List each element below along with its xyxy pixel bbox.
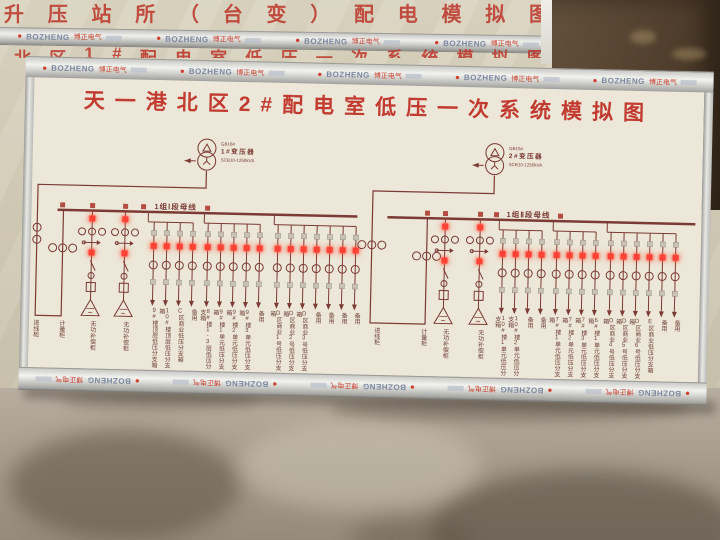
feeder-label: 9#楼3单元低压分支箱 xyxy=(240,310,250,372)
mimic-board: ●BOZHENG博正电气●BOZHENG博正电气●BOZHENG博正电气●BOZ… xyxy=(18,56,713,404)
feeder-label: 无功补偿柜 xyxy=(473,329,483,359)
brand-logo-icon: ● xyxy=(317,70,322,78)
feeder-label: E区商业低压分支箱 xyxy=(643,319,653,373)
feeder-label: D区商业1号低压分支箱 xyxy=(271,311,281,373)
feeder-label: 计量柜 xyxy=(417,328,426,346)
film-barcode xyxy=(543,77,559,82)
brand-chinese: 博正电气 xyxy=(193,377,221,388)
wall-title-char: # xyxy=(112,44,121,58)
brand-latin: BOZHENG xyxy=(362,382,406,392)
feeder-label: 备用 xyxy=(536,317,545,329)
feeder-label: 备用 xyxy=(324,312,333,324)
wall-title-char: 变 xyxy=(267,0,287,27)
brand-segment: ●BOZHENG博正电气 xyxy=(310,380,415,392)
brand-logo-icon: ● xyxy=(410,383,415,391)
feeder-label: 备用 xyxy=(350,312,359,324)
brand-latin: BOZHENG xyxy=(637,388,681,398)
feeder-label: 9#楼顶层低压分支箱 xyxy=(147,308,157,368)
wall-title-char: 模 xyxy=(442,0,462,27)
floor-stain xyxy=(430,470,720,540)
feeder-label: 7#楼1单元低压分支箱 xyxy=(550,317,560,379)
wall-title-char: 1 xyxy=(84,44,93,58)
feeder-label: 10#楼1单元低压分支箱 xyxy=(496,316,506,378)
door-mark xyxy=(630,30,656,44)
brand-segment: ●BOZHENG博正电气 xyxy=(448,383,553,395)
brand-latin: BOZHENG xyxy=(464,73,508,83)
floor-light-patch xyxy=(240,420,480,510)
brand-segment: ●BOZHENG博正电气 xyxy=(592,75,697,87)
feeder-label: C区商业低压分支箱 xyxy=(173,308,183,362)
wall-title-char: 站 xyxy=(92,0,112,27)
film-barcode xyxy=(448,386,464,391)
wall-title-char: ） xyxy=(310,0,330,27)
brand-latin: BOZHENG xyxy=(189,67,233,77)
feeder-label: D区商业2号低压分支箱 xyxy=(284,311,294,373)
wall-title-char: 所 xyxy=(135,0,155,27)
wall-title-char: 拟 xyxy=(485,0,505,27)
brand-latin: BOZHENG xyxy=(87,375,131,385)
brand-chinese: 博正电气 xyxy=(374,70,402,81)
brand-chinese: 博正电气 xyxy=(649,77,677,88)
feeder-label: 备用 xyxy=(254,310,263,322)
wall-title-char: 升 xyxy=(4,0,24,27)
feeder-label: 备用 xyxy=(311,312,320,324)
wall-title-char: 系 xyxy=(386,44,403,58)
brand-segment: ●BOZHENG博正电气 xyxy=(173,377,278,389)
brand-logo-icon: ● xyxy=(135,377,140,385)
film-barcode xyxy=(310,383,326,388)
feeder-label: 6#楼1单元低压分支箱 xyxy=(589,318,599,380)
feeder-label: D区商业3号低压分支箱 xyxy=(297,311,307,373)
brand-chinese: 博正电气 xyxy=(236,67,264,78)
brand-logo-icon: ● xyxy=(42,64,47,72)
brand-segment: ●BOZHENG博正电气 xyxy=(180,66,285,78)
feeder-label: 无功补偿柜 xyxy=(438,328,448,358)
wall-title-char: 低 xyxy=(245,44,262,58)
door-mark xyxy=(672,48,706,60)
brand-latin: BOZHENG xyxy=(326,70,370,80)
feeder-label: 备用 xyxy=(657,319,666,331)
brand-chinese: 博正电气 xyxy=(605,387,633,398)
wall-title-char: 次 xyxy=(351,44,368,58)
feeder-label: 7#楼3单元低压分支箱 xyxy=(576,318,586,380)
feeder-label: D区商业5号低压分支箱 xyxy=(617,319,627,381)
brand-logo-icon: ● xyxy=(593,76,598,84)
wall-title-char: 压 xyxy=(281,44,298,58)
feeder-label: D区商业4号低压分支箱 xyxy=(604,318,614,380)
feeder-label: 8#楼1-3层低压分支箱 xyxy=(201,309,211,371)
brand-chinese: 博正电气 xyxy=(74,32,102,42)
brand-chinese: 博正电气 xyxy=(511,74,539,85)
wall-title-char: 电 xyxy=(175,44,192,58)
wall-title-char: 压 xyxy=(48,0,68,27)
feeder-label: 进线柜 xyxy=(370,327,379,345)
feeder-label: 10#楼2单元低压分支箱 xyxy=(509,316,519,378)
feeder-label: D区商业6号低压分支箱 xyxy=(630,319,640,381)
floor-stain xyxy=(10,430,240,540)
wall-title-char: 模 xyxy=(457,44,474,58)
film-barcode xyxy=(173,379,189,384)
brand-chinese: 博正电气 xyxy=(99,64,127,75)
feeder-label: 9#楼1单元低压分支箱 xyxy=(214,309,224,371)
wall-title-char: 配 xyxy=(354,0,374,27)
brand-segment: ●BOZHENG博正电气 xyxy=(42,63,147,75)
brand-segment: ●BOZHENG博正电气 xyxy=(35,374,140,386)
film-barcode xyxy=(586,389,602,394)
brand-logo-icon: ● xyxy=(455,73,460,81)
film-barcode xyxy=(681,80,697,85)
wall-title-char: 一 xyxy=(316,44,333,58)
background-board-title: 升压站所（台变）配电模拟图 xyxy=(4,0,549,27)
brand-segment: ●BOZHENG博正电气 xyxy=(585,386,690,398)
wall-title-char: 配 xyxy=(140,44,157,58)
brand-logo-icon: ● xyxy=(180,67,185,75)
film-barcode xyxy=(131,67,147,72)
film-barcode xyxy=(245,37,261,42)
brand-chinese: 博正电气 xyxy=(55,374,83,385)
feeder-label: 备用 xyxy=(523,316,532,328)
wall-title-char: 室 xyxy=(210,44,227,58)
brand-logo-icon: ● xyxy=(685,390,690,398)
wall-title-char: 电 xyxy=(398,0,418,27)
feeder-label: 进线柜 xyxy=(29,319,38,337)
brand-latin: BOZHENG xyxy=(165,34,209,44)
feeder-label: 7#楼2单元低压分支箱 xyxy=(563,317,573,379)
brand-chinese: 博正电气 xyxy=(468,384,496,395)
wall-title-char: 统 xyxy=(421,44,438,58)
brand-segment: ●BOZHENG博正电气 xyxy=(17,31,121,43)
film-barcode xyxy=(268,71,284,76)
brand-latin: BOZHENG xyxy=(225,379,269,389)
wall-title-char: （ xyxy=(179,0,199,27)
feeder-label: 备用 xyxy=(187,309,196,321)
brand-logo-icon: ● xyxy=(156,34,161,42)
feeder-label: 无功补偿柜 xyxy=(118,321,128,351)
film-barcode xyxy=(35,376,51,381)
brand-latin: BOZHENG xyxy=(51,64,95,74)
feeder-label-layer: 进线柜计量柜无功补偿柜无功补偿柜9#楼顶层低压分支箱10#楼顶层低压分支箱C区商… xyxy=(28,77,704,382)
photo-scene: 升压站所（台变）配电模拟图 ●BOZHENG博正电气●BOZHENG博正电气●B… xyxy=(0,0,720,540)
background-board-title-2: 北区1#配电室低压一次系统模拟图 xyxy=(14,44,544,58)
feeder-label: 10#楼顶层低压分支箱 xyxy=(160,308,170,370)
feeder-label: 无功补偿柜 xyxy=(85,320,95,350)
feeder-label: 9#楼2单元低压分支箱 xyxy=(227,310,237,372)
brand-segment: ●BOZHENG博正电气 xyxy=(317,69,422,81)
feeder-label: 备用 xyxy=(337,312,346,324)
board-face: 天一港北区2#配电室低压一次系统模拟图 GB16#1#变压器SCB10-1250… xyxy=(28,77,704,382)
film-barcode xyxy=(106,35,122,40)
film-barcode xyxy=(406,74,422,79)
brand-latin: BOZHENG xyxy=(500,385,544,395)
wall-title-char: 台 xyxy=(223,0,243,27)
brand-chinese: 博正电气 xyxy=(330,380,358,391)
feeder-label: 计量柜 xyxy=(55,320,64,338)
brand-logo-icon: ● xyxy=(272,380,277,388)
brand-segment: ●BOZHENG博正电气 xyxy=(455,72,560,84)
brand-logo-icon: ● xyxy=(17,32,22,40)
brand-latin: BOZHENG xyxy=(601,76,645,86)
feeder-label: 备用 xyxy=(670,320,679,332)
brand-logo-icon: ● xyxy=(547,386,552,394)
brand-latin: BOZHENG xyxy=(26,32,70,42)
wall-title-char: 拟 xyxy=(492,44,509,58)
